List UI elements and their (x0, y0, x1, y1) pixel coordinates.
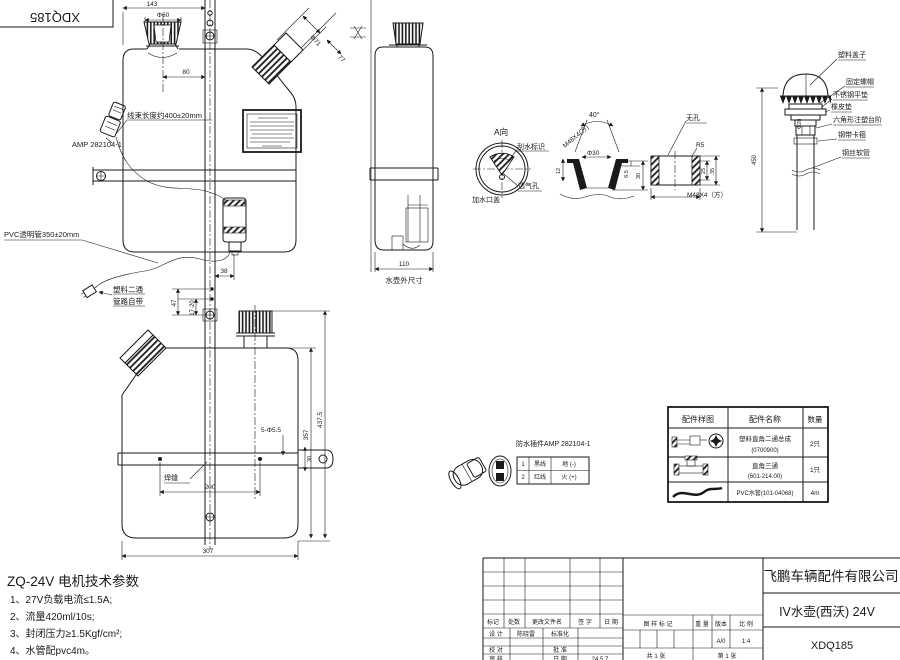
company-name: 飞鹏车辆配件有限公司 (764, 568, 899, 584)
dim-47: 47 (172, 299, 178, 306)
connector-3d (446, 455, 487, 490)
plug-detail: 无孔 R5 25 35 M48X4（方） (651, 114, 727, 200)
cap-assembly-detail: Φ28 450 塑料盖子 固定螺帽 不锈钢平垫 橡皮垫 六角形注塑台阶 钢带卡箍… (752, 50, 882, 232)
pvc-note: PVC透明管350±20mm (4, 229, 79, 239)
vent-label: 透气孔 (518, 181, 539, 190)
mark-label: 图 样 标 记 (643, 620, 672, 628)
warning-plate (243, 110, 301, 152)
dim-30-bar: 30 (307, 456, 313, 462)
cap-thread: M48X4(方) (560, 123, 590, 150)
audit-label: 审 核 (489, 655, 503, 660)
dim-307: 307 (203, 548, 214, 555)
side-view-caption: 水壶外尺寸 (385, 275, 423, 285)
engineering-drawing-sheet: XDQ185 (0, 0, 900, 660)
part-sketch-elbow (672, 434, 723, 448)
plug-note: 无孔 (686, 114, 700, 122)
dim-38: 38 (220, 268, 228, 275)
part-1-name: 塑料直角二通总成 (739, 434, 792, 443)
rear-view: 30 焊缝 437.5 357 5-Φ5.5 200 307 (118, 305, 333, 560)
detail-a-title: A向 (494, 127, 508, 137)
wiper-label: 刮水标识 (517, 142, 545, 151)
dim-phi71: Φ71 (308, 34, 322, 48)
label-hex-step: 六角形注塑台阶 (833, 115, 882, 124)
part-2-qty: 1只 (810, 466, 821, 474)
cap-height: 30 (636, 173, 642, 179)
pin-2-wire: 红线 (534, 473, 546, 481)
tee-note-1: 塑料二通 (113, 284, 143, 294)
rear-mount-bar (118, 453, 298, 465)
harness-wire (116, 137, 227, 201)
label-band-clamp: 钢带卡箍 (838, 130, 866, 139)
dim-phi60: Φ60 (157, 12, 170, 19)
corner-stamp-box: XDQ185 (0, 0, 113, 27)
rev-h-sign: 签 字 (578, 618, 592, 626)
std-label: 标准化 (551, 630, 569, 638)
label-rubber-pad: 橡皮垫 (831, 102, 852, 111)
part-sketch-tee (674, 456, 708, 475)
pinout-table: 1 黑线 地 (-) 2 红线 火 (+) (517, 457, 589, 484)
cap-dia: Φ30 (587, 150, 600, 157)
pin-1-wire: 黑线 (534, 460, 546, 468)
check-label: 校 对 (489, 646, 503, 654)
side-view: 110 水壶外尺寸 (350, 0, 438, 285)
parts-header-name: 配件名称 (749, 414, 781, 424)
part-sketch-hose (673, 488, 722, 497)
dim-phi28: Φ28 (797, 119, 803, 130)
dim-357: 357 (303, 429, 310, 440)
motor-specs-title: ZQ-24V 电机技术参数 (7, 573, 140, 589)
rear-cap (239, 311, 272, 333)
part-3-name: PVC水管(101-04068) (736, 489, 793, 497)
label-fixing-nut: 固定螺帽 (846, 77, 874, 86)
cap-angle: 40° (589, 111, 600, 119)
filler-cap-label: 加水口盖 (472, 195, 500, 204)
motor-spec-4: 4、水管配pvc4m。 (10, 644, 95, 657)
motor-spec-1: 1、27V负载电流≤1.5A; (10, 593, 112, 606)
plug-inner: 25 (701, 168, 707, 174)
part-1-code: (0700900) (751, 448, 778, 454)
pin-1-no: 1 (521, 462, 525, 468)
pump (223, 198, 246, 255)
drawing-code: XDQ185 (811, 640, 853, 652)
wiper-symbol (490, 153, 514, 175)
cap-depth: 12 (556, 168, 562, 174)
side-clip (350, 26, 366, 39)
cap-teeth (780, 96, 831, 104)
dim-200: 200 (205, 484, 216, 491)
harness-note: 线束长度约400±20mm (127, 110, 202, 120)
version-label: 版本 (715, 620, 727, 628)
pin-2-no: 2 (521, 475, 525, 481)
label-ss-washer: 不锈钢平垫 (833, 90, 868, 99)
side-cap (393, 23, 423, 44)
sheet-no: 第 1 张 (718, 652, 737, 660)
scale-label: 比 例 (739, 620, 753, 628)
rev-h-mark: 标记 (487, 618, 499, 626)
approve-label: 批 准 (553, 646, 567, 654)
dim-17-20: 17·20 (190, 300, 196, 316)
weld-note: 焊缝 (164, 473, 178, 482)
pin-1-func: 地 (-) (562, 460, 576, 468)
dim-5-phi5-5: 5-Φ5.5 (261, 427, 281, 434)
motor-specs: ZQ-24V 电机技术参数 1、27V负载电流≤1.5A; 2、流量420ml/… (7, 573, 140, 657)
design-label: 设 计 (489, 630, 503, 638)
sheets-total: 共 1 张 (647, 652, 666, 660)
part-3-qty: 4m (810, 490, 819, 497)
corner-stamp-text: XDQ185 (30, 10, 80, 25)
connector-title: 防水插件AMP 282104-1 (516, 439, 591, 448)
title-block: 标记 处数 更改文件名 签 字 日 期 设 计 陈晓雷 标准化 校 对 批 准 … (483, 558, 900, 660)
drawing-canvas: XDQ185 (0, 0, 900, 660)
parts-table: 配件样图 配件名称 数量 塑料直角二通总成 (0700900) 2只 直角三通 … (668, 407, 828, 502)
plug-outer: 35 (710, 168, 716, 174)
designer-name: 陈晓雷 (517, 630, 535, 638)
plug-thread: M48X4（方） (687, 190, 727, 199)
label-plastic-cover: 塑料盖子 (838, 50, 866, 59)
dim-143: 143 (147, 1, 158, 8)
pin-2-func: 火 (+) (561, 474, 576, 481)
part-2-name: 直角三通 (752, 461, 779, 470)
date-label: 日 期 (553, 655, 567, 660)
dim-80: 80 (182, 69, 190, 76)
part-2-code: (601-214.00) (748, 474, 782, 480)
tee-note-2: 管路自带 (113, 296, 143, 306)
connector-detail: 防水插件AMP 282104-1 1 黑线 地 (-) 2 红线 火 (+) (446, 439, 590, 491)
part-1-qty: 2只 (810, 440, 821, 448)
scale-value: 1:4 (742, 639, 751, 645)
front-view: 143 Φ60 80 Φ71 77 线束长度约400±20mm AMP 2821… (4, 0, 346, 550)
dim-77: 77 (336, 54, 346, 64)
rev-h-count: 处数 (508, 618, 520, 626)
label-wire-hose: 钢丝软管 (842, 148, 870, 157)
dim-110: 110 (399, 261, 410, 268)
plug-radius: R5 (696, 142, 705, 149)
parts-header-sample: 配件样图 (682, 414, 714, 424)
parts-header-qty: 数量 (808, 414, 823, 424)
cap-section-detail: 40° M48X4(方) Φ30 12 6.5 30 (556, 111, 648, 199)
amp-connector-note: AMP 282104-1 (72, 140, 122, 149)
weight-label: 重 量 (695, 620, 709, 628)
motor-spec-2: 2、流量420ml/10s; (10, 610, 94, 623)
tee-fitting (80, 285, 96, 299)
version-value: A/0 (716, 639, 726, 645)
product-name: IV水壶(西沃) 24V (779, 604, 876, 619)
rev-h-file: 更改文件名 (532, 618, 562, 626)
motor-spec-3: 3、封闭压力≥1.5Kgf/cm²; (10, 627, 122, 640)
dim-437-5: 437.5 (317, 411, 324, 428)
rev-h-date: 日 期 (604, 618, 618, 626)
detail-a: A向 刮水标识 透气孔 加水口盖 (472, 127, 549, 204)
dim-450: 450 (752, 154, 758, 165)
cap-step: 6.5 (624, 170, 630, 178)
